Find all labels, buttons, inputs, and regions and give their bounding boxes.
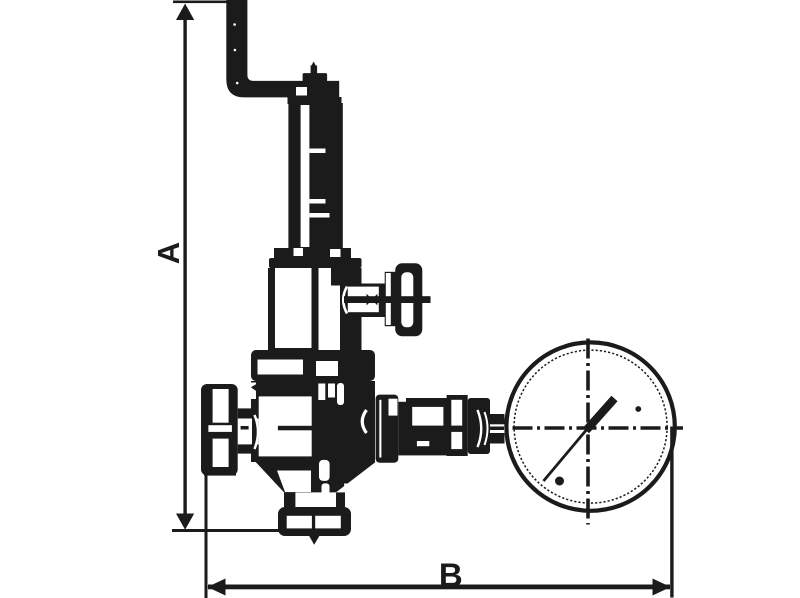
svg-text:A: A bbox=[151, 242, 186, 264]
svg-text:B: B bbox=[439, 556, 463, 593]
